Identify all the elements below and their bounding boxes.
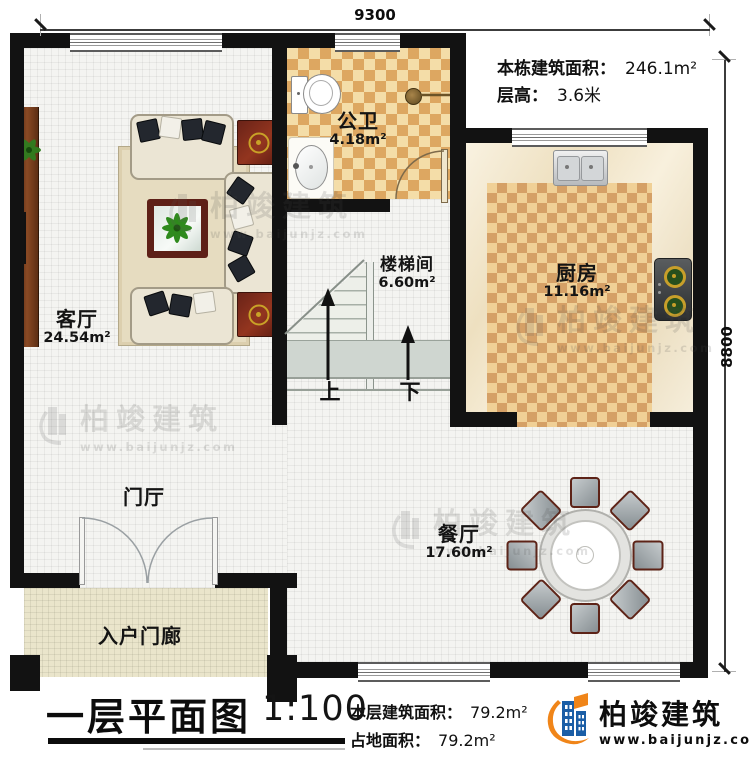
floor-height: 层高：3.6米	[497, 81, 601, 106]
wall	[680, 662, 708, 678]
room-label-porch: 入户门廊	[98, 625, 182, 647]
brand-text: 柏竣建筑 www.baijunjz.com	[599, 693, 750, 748]
floor-plan-page: 9300 8800 本栋建筑面积：246.1m² 层高：3.6米 公卫 4.18…	[0, 0, 750, 761]
land-area-label: 占地面积：	[350, 731, 430, 750]
stair-step-line	[287, 389, 450, 391]
table-plant-icon	[160, 213, 194, 243]
stair-down-label: 下	[400, 376, 421, 406]
stair-up-label: 上	[320, 376, 341, 406]
brand-logo-icon	[543, 693, 591, 747]
wall	[272, 199, 390, 212]
wall	[215, 573, 297, 588]
room-label-bath: 公卫 4.18m²	[329, 110, 386, 149]
pillow	[136, 118, 161, 143]
stair-landing	[287, 340, 450, 378]
towel-ring-icon	[405, 88, 422, 105]
toilet-bowl-icon	[303, 74, 341, 114]
wall	[490, 662, 588, 678]
brand-url: www.baijunjz.com	[599, 733, 750, 748]
compass-ornament-icon	[248, 304, 269, 325]
dimension-line-top	[40, 29, 710, 31]
wall	[450, 33, 466, 413]
bath-sink-icon	[295, 145, 328, 190]
title-underline	[48, 738, 345, 744]
dimension-right-value: 8800	[718, 326, 736, 368]
wall	[450, 412, 517, 427]
land-area-value: 79.2m²	[438, 731, 496, 750]
floor-area-label: 本层建筑面积：	[350, 703, 462, 722]
total-area-label: 本栋建筑面积：	[497, 59, 616, 79]
wall	[272, 48, 287, 425]
window	[358, 662, 490, 682]
entry-door-leaf	[212, 517, 218, 585]
brand-name: 柏竣建筑	[599, 693, 750, 733]
stair-step-line	[287, 377, 450, 379]
wall	[693, 128, 708, 678]
plan-title: 一层平面图	[46, 686, 251, 741]
dining-chair	[570, 603, 600, 634]
entry-door-leaf	[79, 517, 85, 585]
title-underline-shadow	[143, 748, 345, 750]
wall	[10, 573, 80, 588]
room-label-stairwell: 楼梯间 6.60m²	[378, 256, 435, 291]
total-area-value: 246.1m²	[625, 59, 697, 79]
window	[588, 662, 680, 682]
pillow	[168, 293, 192, 317]
bathroom-door-leaf	[441, 149, 448, 203]
wall	[222, 33, 335, 48]
room-label-dining: 餐厅 17.60m²	[425, 523, 492, 562]
dining-chair	[507, 541, 538, 571]
floor-area-value: 79.2m²	[470, 703, 528, 722]
dining-chair	[633, 541, 664, 571]
floor-area-line: 本层建筑面积：79.2m²	[350, 699, 528, 723]
window	[512, 128, 647, 147]
kitchen-sink-icon	[553, 150, 608, 186]
window	[70, 33, 222, 52]
floor-height-label: 层高：	[497, 86, 548, 106]
dimension-top-value: 9300	[354, 6, 396, 24]
room-label-kitchen: 厨房 11.16m²	[543, 262, 610, 301]
window	[335, 33, 400, 52]
room-label-foyer: 门厅	[123, 486, 165, 508]
wall	[10, 33, 24, 573]
room-label-living: 客厅 24.54m²	[43, 308, 110, 347]
wall	[270, 588, 287, 663]
kitchen-rug-spill	[517, 412, 650, 427]
stove-icon	[654, 258, 692, 321]
compass-ornament-icon	[248, 132, 269, 153]
wall	[466, 128, 512, 143]
pillow	[193, 291, 217, 315]
floor-height-value: 3.6米	[557, 86, 601, 106]
land-area-line: 占地面积：79.2m²	[350, 727, 496, 751]
wall	[650, 412, 708, 427]
pillow	[159, 116, 183, 140]
brand-block: 柏竣建筑 www.baijunjz.com	[543, 693, 750, 748]
dining-chair	[570, 477, 600, 508]
porch-pillar	[10, 655, 40, 691]
total-building-area: 本栋建筑面积：246.1m²	[497, 54, 697, 79]
